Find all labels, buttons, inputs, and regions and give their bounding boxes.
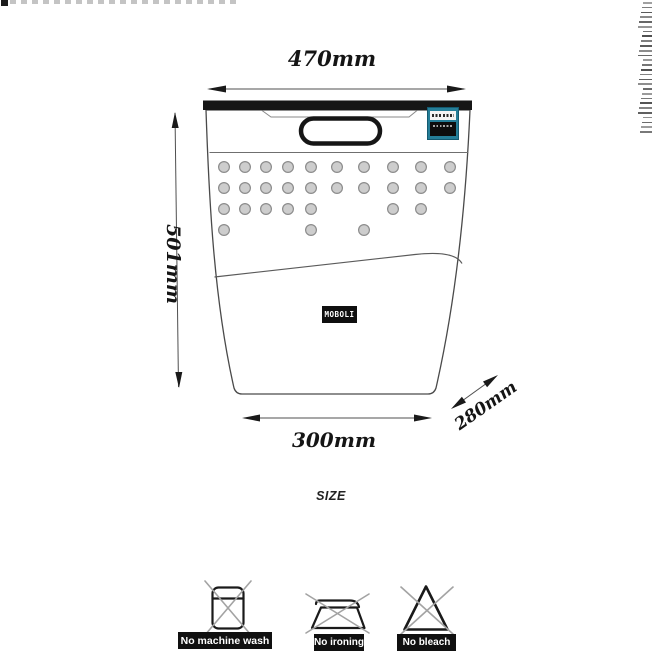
no-machine-wash-icon xyxy=(205,581,251,635)
dimension-bottom-width-label: 300mm xyxy=(264,428,404,452)
handle-cutout xyxy=(301,119,380,144)
hang-tag-microtext2 xyxy=(433,125,453,127)
product-size-diagram: MOBOLI 470mm 501mm 300mm 280mm SIZE No m… xyxy=(0,0,652,652)
hang-tag-microtext xyxy=(432,114,454,117)
hang-tag-photo xyxy=(430,122,456,136)
hang-tag xyxy=(427,107,459,140)
dimension-height-label: 501mm xyxy=(162,224,184,304)
brand-label: MOBOLI xyxy=(322,306,357,323)
hamper-line-drawing xyxy=(0,0,652,652)
care-label-no-ironing: No ironing xyxy=(314,634,364,651)
care-label-no-machine-wash: No machine wash xyxy=(178,632,272,649)
dimension-arrow-bottom-width xyxy=(242,415,432,422)
no-bleach-icon xyxy=(401,587,453,635)
care-label-no-bleach: No bleach xyxy=(397,634,456,651)
dimension-top-width-label: 470mm xyxy=(262,46,402,71)
hang-tag-header xyxy=(430,111,456,120)
size-section-title: SIZE xyxy=(291,489,371,503)
no-ironing-icon xyxy=(306,594,369,633)
dimension-arrow-top-width xyxy=(207,86,466,93)
